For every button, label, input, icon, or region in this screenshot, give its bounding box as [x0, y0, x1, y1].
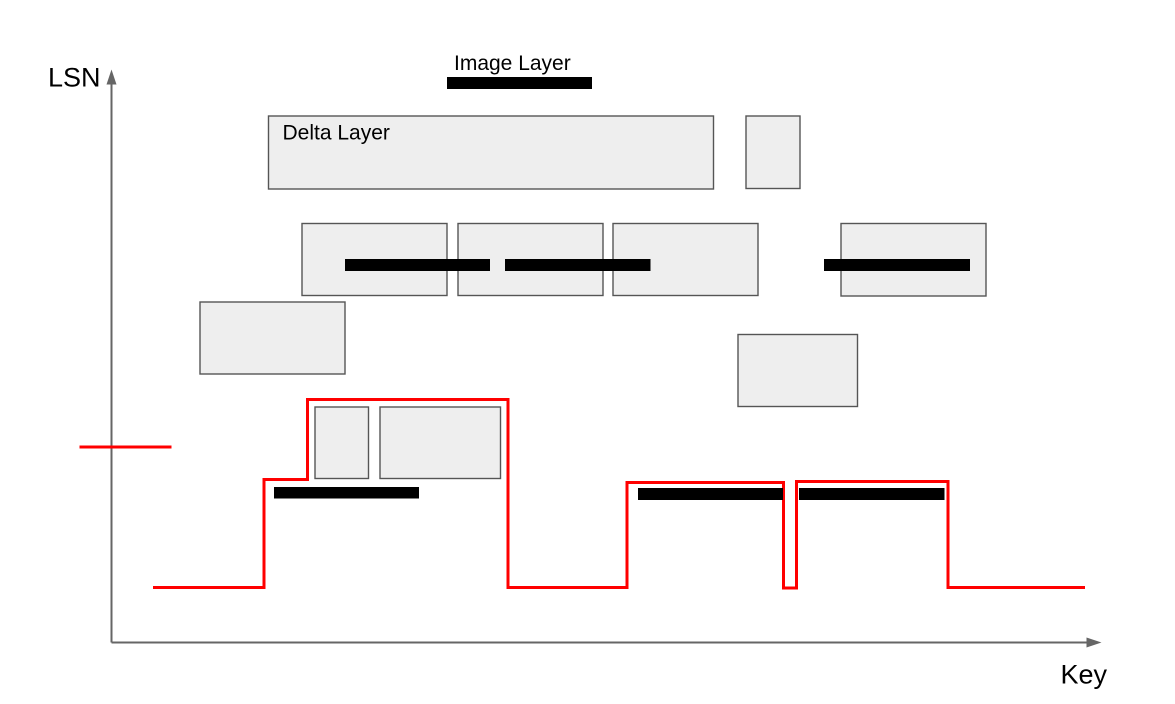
svg-text:Image Layer: Image Layer: [454, 52, 571, 75]
svg-text:Delta Layer: Delta Layer: [283, 122, 390, 145]
svg-text:LSN: LSN: [48, 63, 101, 93]
svg-text:Key: Key: [1061, 660, 1108, 690]
